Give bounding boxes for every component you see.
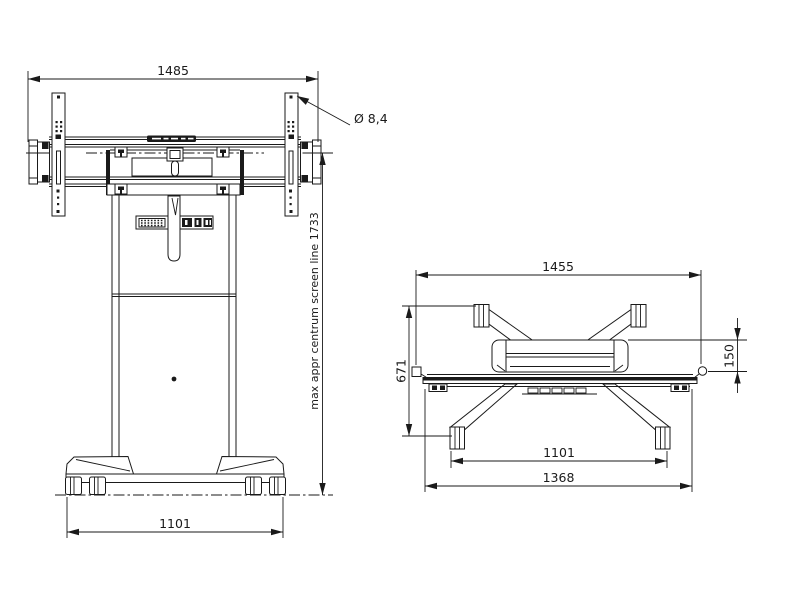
drawing-canvas: 1485 Ø 8,4 1101 max appr centrum screen … <box>0 0 800 600</box>
dim-width-1368: 1368 <box>425 389 692 492</box>
top-view-drawing: 1455 671 150 1101 <box>394 259 748 492</box>
dim-label-1101-top: 1101 <box>543 445 575 460</box>
dim-label-671: 671 <box>394 359 409 383</box>
dimension-drawing: 1485 Ø 8,4 1101 max appr centrum screen … <box>0 0 800 600</box>
dim-offset-150: 150 <box>628 318 747 393</box>
dim-label-1368: 1368 <box>543 470 575 485</box>
display-bracket-left <box>52 93 65 216</box>
dim-span-1101-top: 1101 <box>451 445 667 468</box>
column-top <box>492 340 628 372</box>
front-view-drawing: 1485 Ø 8,4 1101 max appr centrum screen … <box>26 63 388 538</box>
brand-label <box>147 136 196 143</box>
hole-diameter-callout: Ø 8,4 <box>297 96 388 126</box>
dim-screen-line-1733: max appr centrum screen line 1733 <box>303 153 334 495</box>
control-strip-top <box>522 388 597 394</box>
control-panel <box>136 196 213 261</box>
rail-assembly <box>26 136 321 196</box>
display-bracket-right <box>285 93 298 216</box>
caster-wheel <box>450 305 670 450</box>
dim-label-1455: 1455 <box>542 259 574 274</box>
bar-end-cap-left <box>412 367 421 377</box>
dim-label-1101-front: 1101 <box>159 516 191 531</box>
dim-label-screen-line: max appr centrum screen line 1733 <box>308 212 321 409</box>
bar-end-cap-right <box>698 367 706 375</box>
dim-width-1485: 1485 <box>28 63 318 142</box>
dim-label-hole: Ø 8,4 <box>354 111 388 126</box>
dim-label-1485: 1485 <box>157 63 189 78</box>
dim-width-1101-front: 1101 <box>67 497 283 538</box>
base-legs <box>450 305 670 450</box>
dim-label-150: 150 <box>722 344 737 368</box>
base-assembly <box>55 457 333 496</box>
